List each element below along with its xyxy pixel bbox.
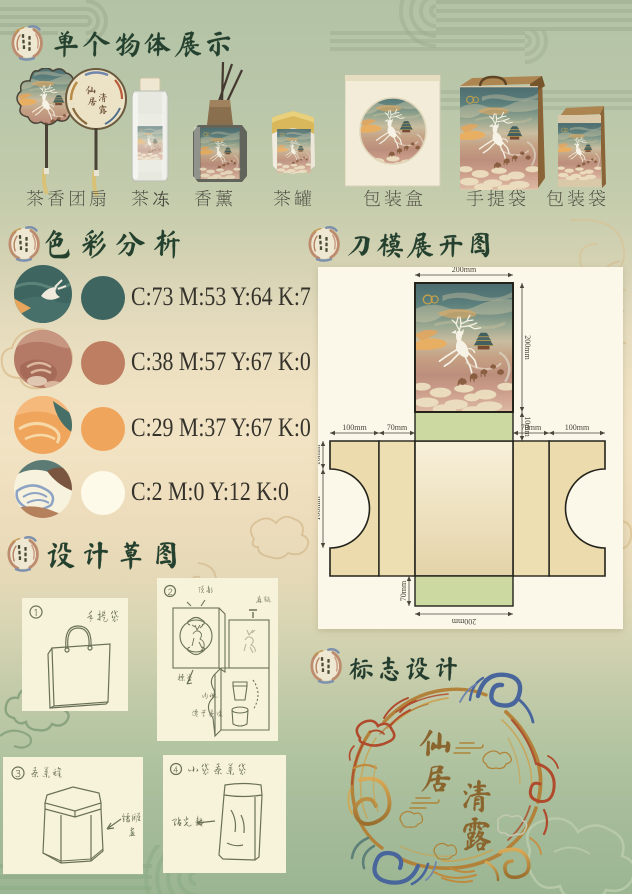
svg-text:100mm: 100mm [565, 423, 590, 432]
svg-text:200mm: 200mm [452, 267, 477, 274]
svg-text:100mm: 100mm [318, 496, 322, 521]
svg-text:70mm: 70mm [387, 423, 408, 432]
svg-text:100mm: 100mm [342, 423, 367, 432]
svg-text:200mm: 200mm [451, 617, 476, 626]
svg-text:70mm: 70mm [399, 580, 408, 601]
svg-text:10mm: 10mm [318, 444, 322, 465]
svg-text:200mm: 200mm [523, 335, 532, 360]
svg-text:70mm: 70mm [521, 423, 542, 432]
